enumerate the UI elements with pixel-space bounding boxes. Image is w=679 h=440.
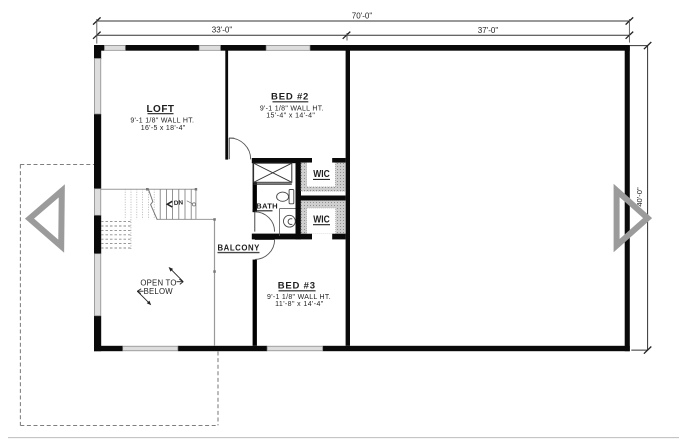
svg-text:70'-0": 70'-0": [352, 11, 373, 20]
svg-text:11'-8" x 14'-4": 11'-8" x 14'-4": [275, 301, 324, 308]
svg-text:BED #3: BED #3: [278, 281, 316, 292]
svg-text:33'-0": 33'-0": [212, 26, 233, 35]
svg-text:BALCONY: BALCONY: [218, 243, 261, 252]
svg-text:BATH: BATH: [256, 201, 278, 210]
svg-text:BED #2: BED #2: [271, 92, 309, 103]
svg-text:40'-0": 40'-0": [635, 187, 644, 207]
svg-text:WIC: WIC: [313, 215, 330, 226]
svg-text:WIC: WIC: [313, 169, 330, 180]
svg-text:9'-1 1/8" WALL HT.: 9'-1 1/8" WALL HT.: [260, 105, 324, 112]
svg-text:BELOW: BELOW: [144, 287, 174, 296]
svg-text:37'-0": 37'-0": [478, 26, 499, 35]
svg-text:9'-1 1/8" WALL HT.: 9'-1 1/8" WALL HT.: [130, 117, 194, 124]
svg-text:15'-4" x 14'-4": 15'-4" x 14'-4": [266, 112, 315, 119]
svg-text:16'-5 x 18'-4": 16'-5 x 18'-4": [141, 125, 186, 132]
svg-text:DN: DN: [174, 199, 184, 207]
svg-text:9'-1 1/8" WALL HT.: 9'-1 1/8" WALL HT.: [267, 294, 331, 301]
